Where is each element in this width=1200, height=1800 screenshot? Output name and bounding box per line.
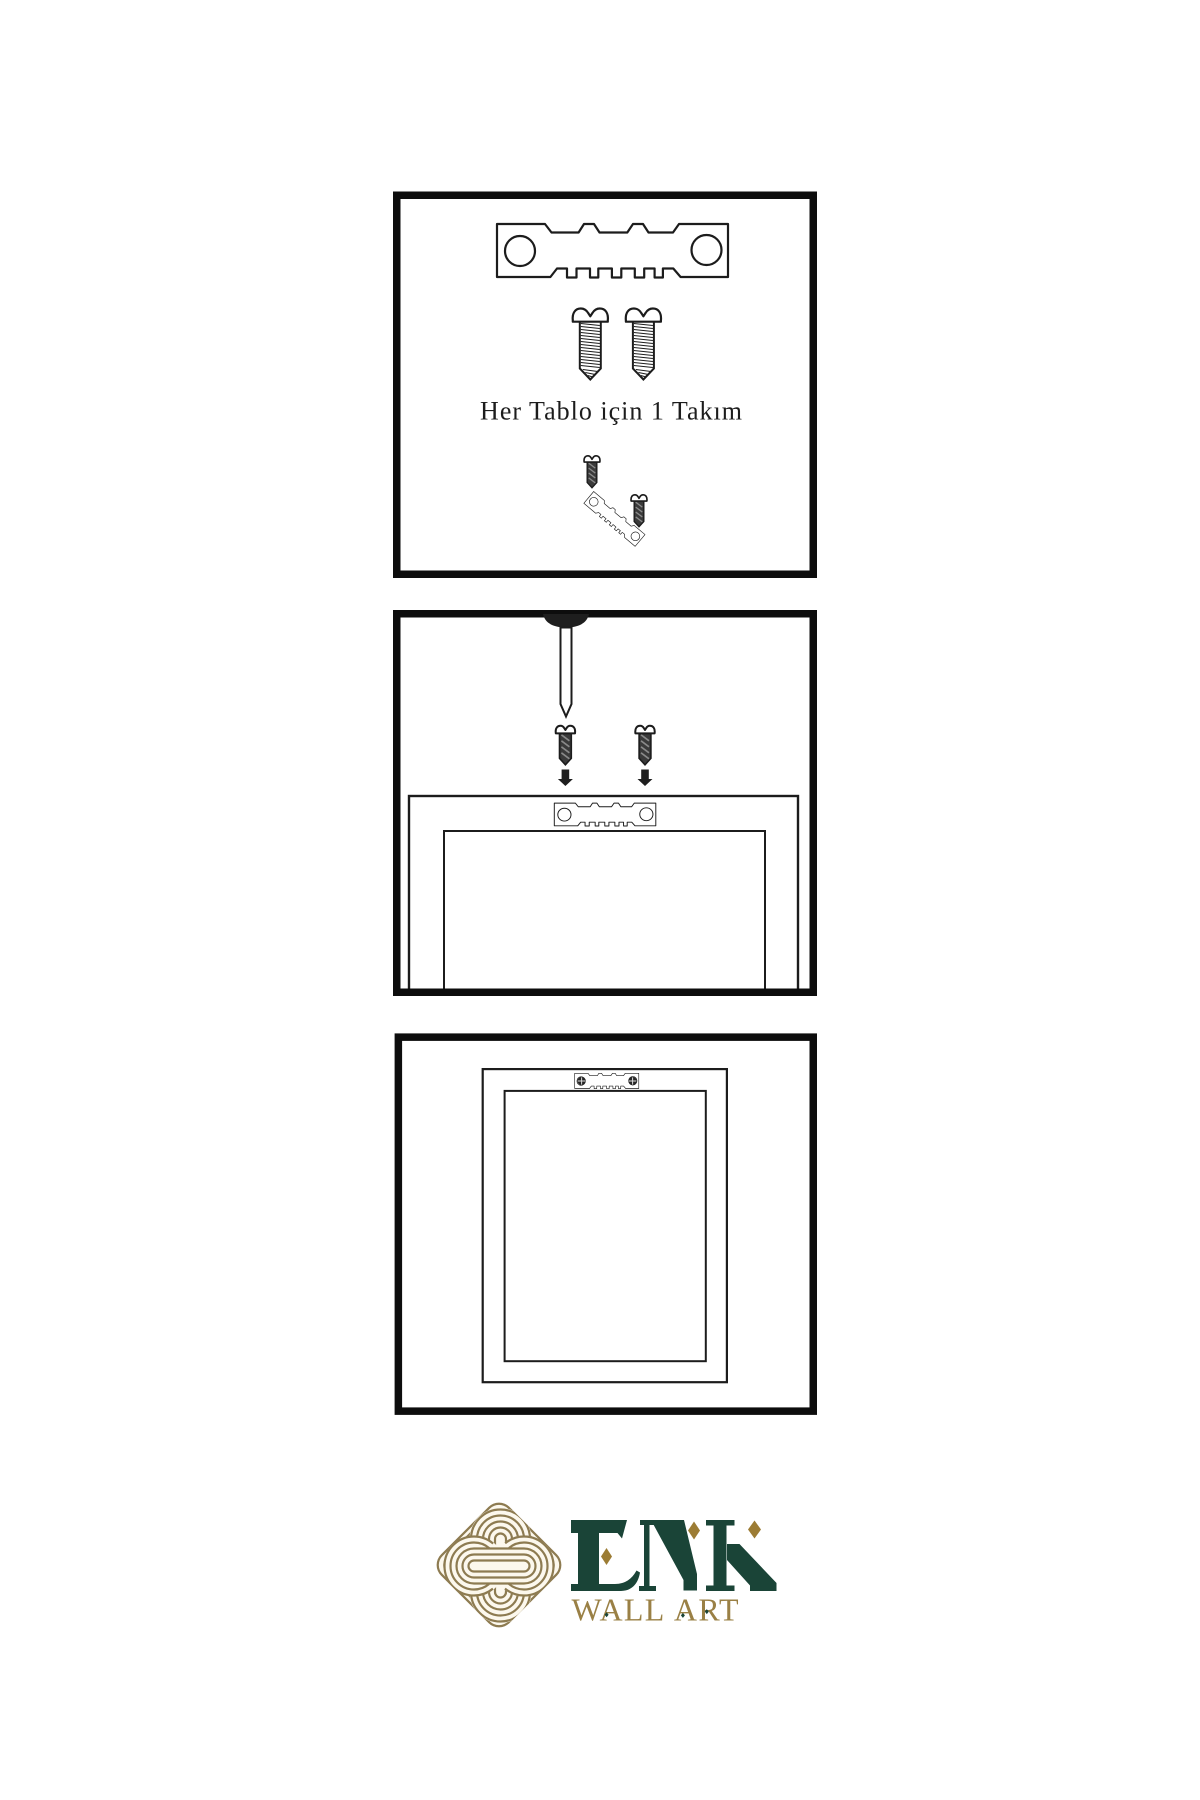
- svg-text:WALL ART: WALL ART: [572, 1592, 740, 1628]
- svg-text:Her Tablo için 1 Takım: Her Tablo için 1 Takım: [480, 397, 743, 426]
